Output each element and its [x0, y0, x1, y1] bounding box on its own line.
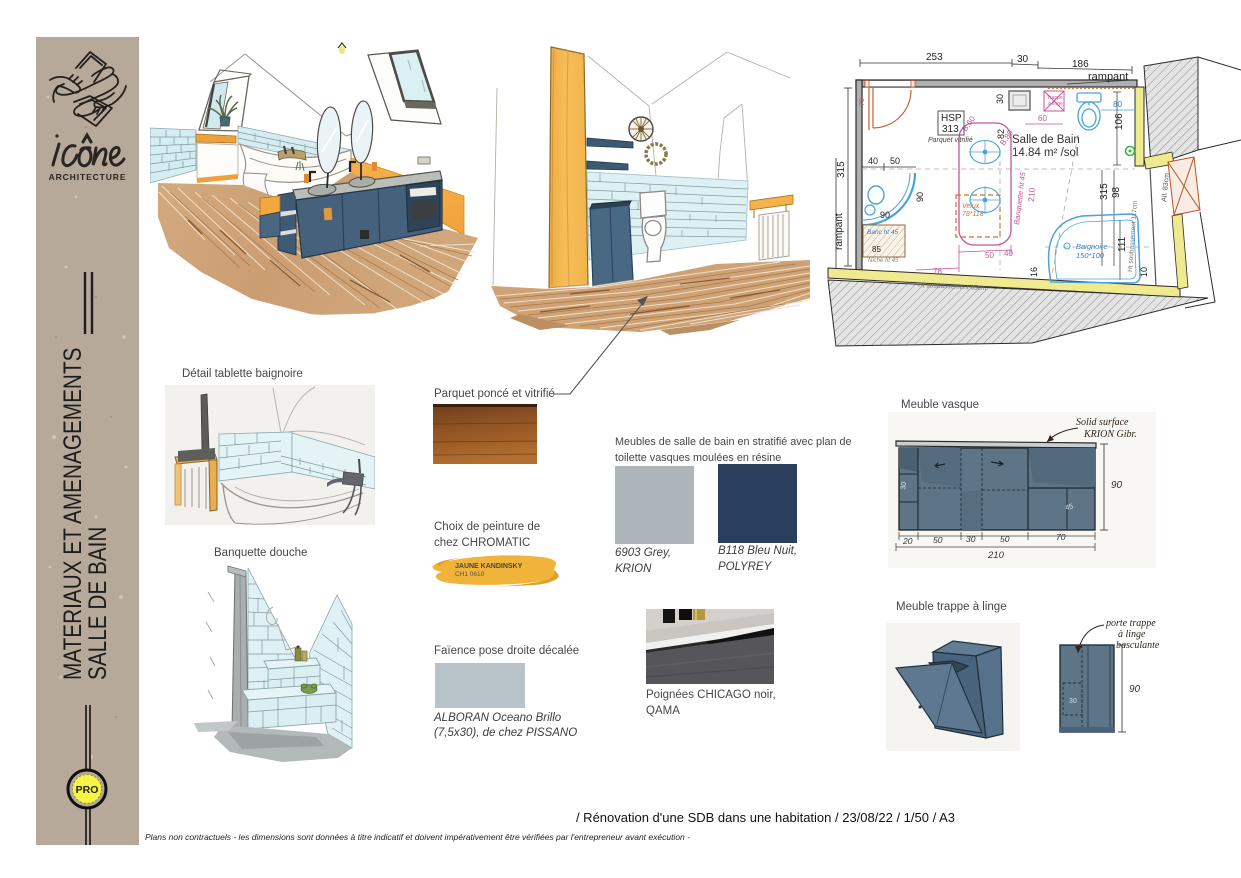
svg-text:106: 106 [1114, 113, 1125, 130]
svg-text:98: 98 [1111, 186, 1122, 198]
svg-text:16: 16 [1029, 267, 1039, 277]
svg-text:253: 253 [926, 52, 943, 63]
svg-text:Solid surface: Solid surface [1076, 417, 1129, 428]
svg-text:rampant: rampant [1088, 71, 1128, 83]
svg-text:111: 111 [1117, 236, 1128, 252]
svg-text:210: 210 [1026, 187, 1037, 202]
svg-text:CH1 0610: CH1 0610 [455, 571, 485, 578]
svg-text:14.84 m² /sol: 14.84 m² /sol [1012, 147, 1078, 159]
svg-text:HSP: HSP [941, 113, 962, 124]
svg-text:30: 30 [1017, 54, 1029, 65]
svg-text:Ht soubassement 117cm: Ht soubassement 117cm [1127, 200, 1139, 272]
svg-text:20: 20 [902, 536, 913, 546]
svg-text:PRO: PRO [76, 784, 99, 796]
svg-text:90: 90 [915, 192, 925, 202]
svg-text:porte trappe: porte trappe [1105, 618, 1156, 629]
svg-text:basculante: basculante [1116, 640, 1160, 651]
svg-text:70: 70 [1056, 532, 1066, 542]
svg-text:Salle de Bain: Salle de Bain [1012, 134, 1080, 146]
svg-text:Banc ht 45: Banc ht 45 [867, 229, 898, 236]
svg-text:78: 78 [933, 267, 942, 276]
svg-text:50: 50 [1000, 534, 1010, 544]
svg-text:JAUNE KANDINSKY: JAUNE KANDINSKY [455, 563, 523, 570]
svg-text:à linge: à linge [1118, 629, 1146, 640]
svg-text:315: 315 [836, 161, 847, 178]
svg-text:Baignoire: Baignoire [1076, 242, 1108, 251]
svg-text:Niche ht 45: Niche ht 45 [868, 258, 899, 264]
svg-text:50: 50 [985, 251, 994, 260]
svg-text:30: 30 [900, 481, 908, 490]
svg-text:30: 30 [1069, 698, 1077, 705]
svg-text:210: 210 [987, 550, 1005, 561]
svg-text:rampant: rampant [834, 213, 845, 250]
svg-text:à linge: à linge [1048, 101, 1063, 107]
svg-text:315: 315 [1099, 183, 1110, 200]
svg-text:70: 70 [859, 98, 866, 106]
svg-text:40: 40 [868, 156, 878, 166]
svg-text:60: 60 [1038, 114, 1047, 123]
svg-text:50: 50 [933, 535, 943, 545]
svg-text:All. 83cm: All. 83cm [1161, 173, 1171, 203]
svg-text:80: 80 [1113, 100, 1122, 109]
svg-text:KRION Gibr.: KRION Gibr. [1083, 429, 1137, 440]
svg-text:90: 90 [1129, 684, 1141, 695]
svg-text:82: 82 [996, 129, 1006, 139]
svg-text:Parquet vitrifié: Parquet vitrifié [928, 137, 973, 144]
svg-text:90: 90 [1111, 480, 1123, 491]
svg-text:30: 30 [995, 94, 1005, 104]
svg-text:186: 186 [1072, 59, 1089, 70]
svg-text:150*100: 150*100 [1076, 251, 1105, 260]
svg-text:30: 30 [966, 534, 976, 544]
svg-text:90: 90 [880, 210, 890, 220]
svg-text:50: 50 [890, 156, 900, 166]
svg-text:313: 313 [942, 124, 959, 135]
svg-text:85: 85 [872, 245, 881, 254]
